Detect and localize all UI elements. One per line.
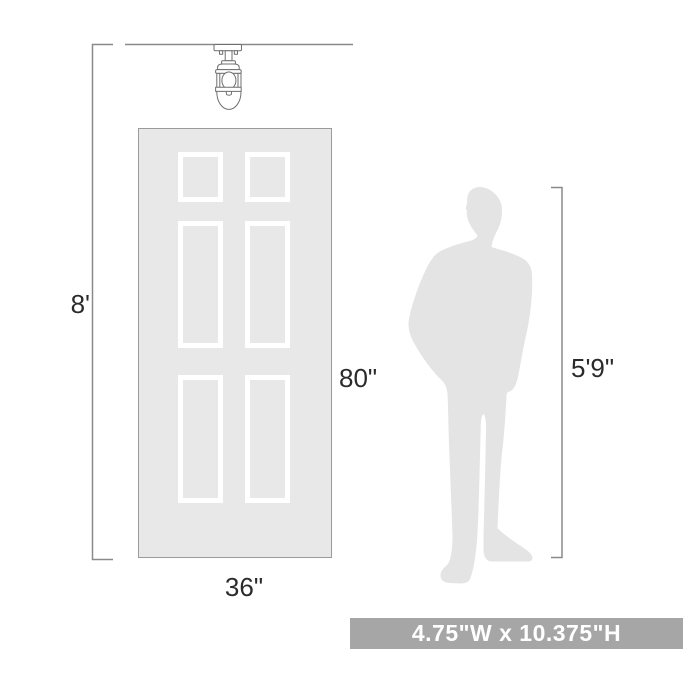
door-panel: [245, 221, 290, 348]
door-illustration: [138, 128, 332, 558]
door-panel: [178, 375, 223, 503]
door-panel: [178, 152, 223, 202]
ceiling-height-dimension-line: [93, 45, 114, 560]
door-panel: [245, 375, 290, 503]
diagram-linework: [0, 0, 700, 700]
person-silhouette: [409, 187, 533, 584]
door-panel: [245, 152, 290, 202]
person-height-label: 5'9": [571, 353, 614, 383]
person-height-dimension-line: [551, 188, 562, 558]
product-dimensions-banner: 4.75"W x 10.375"H: [350, 618, 683, 649]
door-width-label: 36": [201, 572, 287, 602]
door-height-label: 80": [339, 363, 377, 393]
product-scale-diagram: 8' 80" 36" 5'9" 4.75"W x 10.375"H: [0, 0, 700, 700]
door-panel: [178, 221, 223, 348]
ceiling-height-label: 8': [50, 289, 90, 319]
ceiling-light-icon: [214, 45, 242, 110]
product-dimensions-text: 4.75"W x 10.375"H: [412, 620, 621, 646]
